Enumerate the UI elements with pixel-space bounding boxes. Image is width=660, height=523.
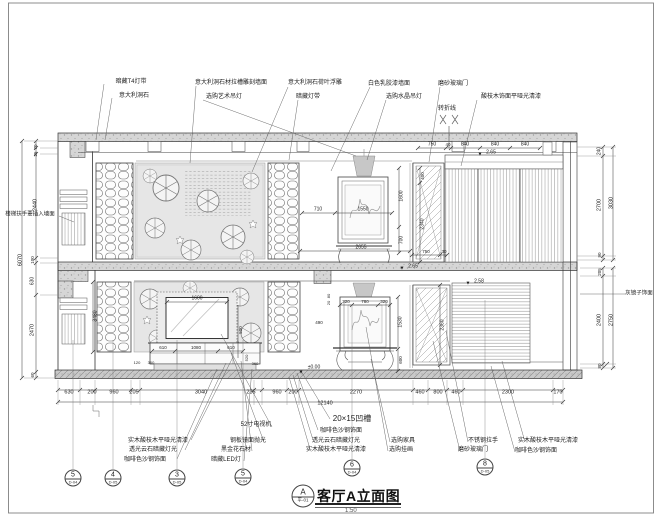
elevation-marker: ▼ bbox=[299, 371, 304, 376]
dimension-label: 2470 bbox=[30, 324, 36, 336]
elevation-marker: ▼ bbox=[466, 282, 471, 287]
detail-sheet-ref: D-05 bbox=[173, 480, 182, 485]
dimension-label: 840 bbox=[461, 143, 469, 148]
dimension-label: 205 bbox=[129, 390, 138, 396]
dimension-label: 960 bbox=[272, 390, 281, 396]
material-callout: 钢板镜面抛光 bbox=[230, 438, 266, 444]
elevation-ref-circle: A 平-01 bbox=[292, 485, 315, 508]
dimension-label: 840 bbox=[521, 143, 529, 148]
dimension-label: 170 bbox=[553, 390, 562, 396]
detail-marker: 6D-04 bbox=[344, 460, 361, 477]
dimension-label: 1600 bbox=[400, 190, 405, 201]
detail-number: 5 bbox=[236, 470, 251, 478]
material-callout: 透光云石暗藏灯光 bbox=[312, 438, 360, 444]
dimension-label: 205 bbox=[598, 268, 603, 276]
detail-sheet-ref: D-04 bbox=[69, 480, 78, 485]
drawing-sheet: 暗藏T4灯带意大利洞石意大利洞石材拉槽雕刻墙面选购艺术吊灯意大利洞石荷叶浮雕暗藏… bbox=[0, 0, 660, 523]
dimension-label: 500 bbox=[239, 326, 244, 334]
detail-number: 8 bbox=[478, 460, 493, 468]
dimension-label: 100 bbox=[31, 256, 36, 264]
dimension-label: 700 bbox=[400, 236, 405, 244]
detail-sheet-ref: D-05 bbox=[109, 480, 118, 485]
dimension-label: 80 bbox=[598, 363, 603, 368]
detail-sheet-ref: D-04 bbox=[239, 479, 248, 484]
dimension-label: 360 bbox=[252, 362, 259, 366]
detail-number: 4 bbox=[106, 471, 121, 479]
dimension-label: 960 bbox=[109, 390, 118, 396]
material-callout: 透光云石暗藏灯光 bbox=[129, 447, 177, 453]
stair-note: 楼梯扶手要插入墙面 bbox=[5, 212, 55, 218]
material-callout: 选购挂画 bbox=[389, 447, 413, 453]
dimension-label: 25 bbox=[34, 151, 39, 156]
material-callout: 磨砂玻璃门 bbox=[458, 447, 488, 453]
dimension-label: 2340 bbox=[421, 218, 426, 229]
material-callout: 实木酸枝木平哑光清漆 bbox=[306, 447, 366, 453]
dimension-label: 120 bbox=[134, 361, 141, 365]
detail-sheet-ref: D-05 bbox=[481, 469, 490, 474]
dimension-label: 1080 bbox=[191, 346, 201, 351]
dimension-label: 3040 bbox=[195, 390, 207, 396]
dimension-label: 320 bbox=[342, 300, 350, 305]
groove-note: 20×15凹槽 bbox=[333, 415, 371, 423]
dimension-label: 3030 bbox=[609, 197, 615, 209]
material-callout: 暗藏灯带 bbox=[296, 94, 320, 100]
dimension-label: 630 bbox=[31, 277, 36, 285]
detail-marker: 4D-05 bbox=[105, 470, 122, 487]
elevation-value: 2.65 bbox=[486, 151, 496, 156]
material-callout: 意大利洞石材拉槽雕刻墙面 bbox=[195, 80, 267, 86]
material-callout: 咖啡色沙钢饰面 bbox=[320, 428, 362, 434]
dimension-label: 460 bbox=[415, 390, 424, 396]
elevation-marker: ▼ bbox=[400, 267, 405, 272]
dimension-label: 2270 bbox=[350, 390, 362, 396]
dimension-label: 750 bbox=[428, 143, 436, 148]
title-underline-thin bbox=[315, 507, 401, 508]
dimension-label: 2655 bbox=[355, 246, 366, 251]
title-underline bbox=[315, 503, 401, 505]
dimension-label: 2360 bbox=[441, 319, 446, 330]
dimension-label: 60 bbox=[31, 372, 36, 377]
dimension-label: 20 bbox=[327, 301, 331, 305]
material-callout: 选购艺术吊灯 bbox=[206, 94, 242, 100]
material-callout: 磨砂玻璃门 bbox=[438, 81, 468, 87]
dimension-label: 610 bbox=[159, 346, 167, 351]
dimension-label: 710 bbox=[314, 208, 322, 213]
annotation-layer: 暗藏T4灯带意大利洞石意大利洞石材拉槽雕刻墙面选购艺术吊灯意大利洞石荷叶浮雕暗藏… bbox=[0, 0, 660, 523]
material-callout: 实木酸枝木平哑光清漆 bbox=[128, 438, 188, 444]
dimension-label: 200 bbox=[87, 390, 96, 396]
dimension-label: 200 bbox=[288, 390, 297, 396]
dimension-label: 1600 bbox=[191, 297, 202, 302]
dimension-label: 235 bbox=[246, 390, 255, 396]
fold-line-label: 转折线 bbox=[438, 106, 456, 112]
dimension-label: 2750 bbox=[609, 314, 615, 326]
dimension-label: 90 bbox=[598, 252, 603, 257]
material-callout: 意大利洞石 bbox=[119, 93, 149, 99]
dimension-label: 840 bbox=[491, 143, 499, 148]
material-callout: 白色乳胶漆墙面 bbox=[368, 81, 410, 87]
material-callout: 黑金花石材 bbox=[221, 447, 251, 453]
detail-marker: 8D-05 bbox=[477, 459, 494, 476]
dimension-label: 780 bbox=[361, 300, 369, 305]
dimension-label: 70 bbox=[34, 144, 39, 149]
dimension-label: 750 bbox=[422, 250, 430, 255]
detail-number: 3 bbox=[170, 471, 185, 479]
elevation-ref-sheet: 平-01 bbox=[297, 498, 308, 504]
material-callout: 52寸电视机 bbox=[241, 422, 272, 428]
dimension-label: 800 bbox=[433, 390, 442, 396]
dimension-label: 1550 bbox=[357, 208, 368, 213]
dimension-label: 240 bbox=[598, 147, 603, 155]
elevation-value: 2.65 bbox=[408, 265, 418, 270]
detail-number: 5 bbox=[66, 471, 81, 479]
dimension-label: 1530 bbox=[399, 316, 404, 327]
dimension-label: 610 bbox=[227, 346, 235, 351]
dimension-label: 520 bbox=[245, 355, 249, 362]
dimension-label: 400 bbox=[421, 172, 426, 180]
material-callout: 暗藏T4灯带 bbox=[115, 79, 146, 85]
dimension-label: 2300 bbox=[502, 390, 514, 396]
dimension-label: 30 bbox=[441, 250, 446, 255]
material-callout: 不锈钢拉手 bbox=[468, 438, 498, 444]
dimension-label: 360 bbox=[148, 361, 155, 365]
dimension-label: 2440 bbox=[33, 199, 39, 211]
detail-marker: 5D-04 bbox=[235, 469, 252, 486]
dimension-label: 80 bbox=[327, 294, 331, 298]
material-callout: 灰镜子饰面 bbox=[625, 291, 653, 297]
elevation-value: ±0.00 bbox=[308, 366, 320, 371]
dimension-label: 12140 bbox=[317, 401, 332, 407]
dimension-label: 2700 bbox=[597, 199, 603, 211]
material-callout: 选购家具 bbox=[391, 438, 415, 444]
detail-marker: 3D-05 bbox=[169, 470, 186, 487]
dimension-label: 320 bbox=[380, 300, 388, 305]
detail-sheet-ref: D-04 bbox=[348, 470, 357, 475]
dimension-label: 40 bbox=[445, 143, 450, 148]
drawing-scale: 1:50 bbox=[345, 508, 357, 514]
material-callout: 咖啡色沙钢饰面 bbox=[515, 448, 557, 454]
dimension-label: 3480 bbox=[94, 310, 99, 321]
material-callout: 意大利洞石荷叶浮雕 bbox=[288, 80, 342, 86]
dimension-label: 2400 bbox=[597, 314, 603, 326]
elevation-marker: ▼ bbox=[478, 153, 483, 158]
material-callout: 选购水晶吊灯 bbox=[386, 94, 422, 100]
dimension-label: 600 bbox=[399, 356, 404, 364]
material-callout: 暗藏LED灯 bbox=[211, 457, 241, 463]
material-callout: 酸枝木饰面平哑光清漆 bbox=[481, 94, 541, 100]
detail-number: 6 bbox=[345, 461, 360, 469]
material-callout: 咖啡色沙钢饰面 bbox=[124, 457, 166, 463]
dimension-label: 460 bbox=[451, 390, 460, 396]
elevation-value: 2.58 bbox=[474, 280, 484, 285]
elevation-ref-letter: A bbox=[293, 488, 314, 497]
dimension-label: 6070 bbox=[18, 254, 24, 266]
detail-marker: 5D-04 bbox=[65, 470, 82, 487]
material-callout: 实木酸枝木平哑光清漆 bbox=[518, 438, 578, 444]
dimension-label: 490 bbox=[315, 321, 323, 326]
dimension-label: 630 bbox=[64, 390, 73, 396]
